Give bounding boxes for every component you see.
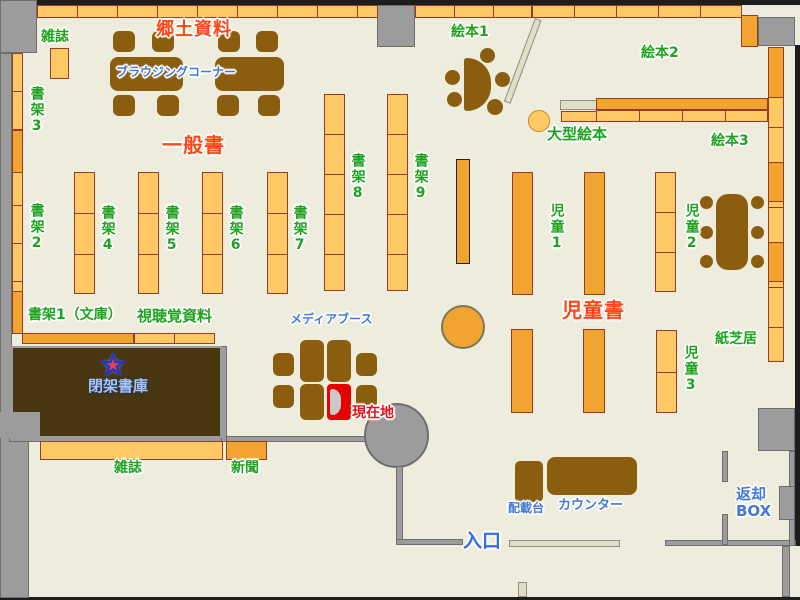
stool — [700, 226, 713, 239]
stool — [495, 72, 510, 87]
counter-desk — [547, 457, 637, 495]
bookshelf-left-column-dark-seg — [12, 291, 23, 334]
label-closed-stacks: 閉架書庫 — [88, 378, 148, 395]
label-return-box: 返却 BOX — [736, 486, 771, 520]
label-shelf7: 書架7 — [291, 205, 307, 255]
person-icon — [330, 389, 341, 415]
media-booth — [300, 384, 324, 420]
label-children-books: 児童書 — [562, 299, 625, 321]
partition-diagonal — [504, 18, 542, 104]
wall-bottom-right — [665, 540, 796, 546]
bookshelf-children-lower-1 — [511, 329, 533, 413]
label-children-1: 児童1 — [548, 203, 564, 253]
bookshelf-picturebooks-lower — [596, 110, 768, 122]
label-shelf3: 書架3 — [28, 86, 44, 136]
stool — [751, 226, 764, 239]
bookshelf-6 — [202, 172, 223, 294]
label-shelf6: 書架6 — [227, 205, 243, 255]
bookshelf-right-column-dark-seg — [768, 162, 784, 202]
label-shelf8: 書架8 — [349, 153, 365, 203]
bookshelf-children-1 — [512, 172, 533, 295]
partition-horizontal — [560, 100, 597, 110]
label-entrance: 入口 — [463, 531, 501, 552]
label-children-2: 児童2 — [683, 203, 699, 253]
wall-returnbox-upper — [722, 451, 728, 482]
label-shelf9: 書架9 — [412, 153, 428, 203]
stool — [751, 196, 764, 209]
wall-bottom-right-vertical — [782, 546, 790, 597]
wall-top-left-block — [0, 0, 37, 53]
bookshelf-top-right-piece — [741, 15, 758, 47]
round-table-center — [441, 305, 485, 349]
bookshelf-left-column-dark-seg — [12, 130, 23, 173]
bookshelf-9 — [387, 94, 408, 291]
chair — [258, 95, 280, 116]
bookshelf-4 — [74, 172, 95, 294]
label-kamishibai: 紙芝居 — [715, 332, 757, 348]
label-large-picture-books: 大型絵本 — [547, 126, 607, 143]
label-shelf2: 書架2 — [28, 203, 44, 253]
entrance-post — [518, 582, 527, 597]
label-shelf5: 書架5 — [163, 205, 179, 255]
chair — [157, 95, 179, 116]
bookshelf-narrow-media — [456, 159, 470, 264]
magazine-rack-bottom — [40, 441, 223, 460]
media-booth-seat — [273, 385, 294, 408]
bookshelf-7 — [267, 172, 288, 294]
chair — [113, 95, 135, 116]
bookshelf-large-picturebooks — [561, 111, 597, 122]
media-booth-seat — [273, 353, 294, 376]
label-general-books: 一般書 — [162, 134, 225, 156]
label-picture-books-2: 絵本2 — [641, 46, 679, 62]
chair — [256, 31, 278, 52]
chair — [217, 95, 239, 116]
bookshelf-top-row-b — [415, 5, 532, 18]
label-picture-books-3: 絵本3 — [711, 134, 749, 150]
stool — [447, 92, 462, 107]
wall-stacks-notch-over — [0, 412, 40, 438]
media-booth — [300, 340, 324, 382]
bookshelf-right-column-dark-seg — [768, 242, 784, 282]
bookshelf-top-row-a — [37, 5, 378, 18]
bookshelf-children-2b — [655, 172, 676, 292]
bookshelf-picturebooks-upper — [596, 98, 768, 110]
stool — [487, 99, 503, 115]
media-booth-seat — [356, 353, 377, 376]
stool — [480, 48, 495, 63]
label-counter: カウンター — [558, 499, 623, 514]
label-magazines-bottom: 雑誌 — [114, 461, 142, 477]
bookshelf-1-bunko — [22, 333, 134, 344]
bookshelf-8 — [324, 94, 345, 291]
label-picture-books-1: 絵本1 — [451, 25, 489, 41]
stool — [445, 70, 460, 85]
stool — [700, 196, 713, 209]
label-sorting-desk: 配載台 — [508, 502, 544, 515]
label-shelf1-bunko: 書架1（文庫） — [28, 308, 122, 324]
label-media-booth: メディアブース — [290, 313, 373, 326]
stool — [700, 255, 713, 268]
bookshelf-top-row-c — [532, 5, 742, 18]
magazine-rack-top — [50, 48, 69, 79]
bookshelf-children-3 — [656, 330, 677, 413]
children-table — [716, 194, 748, 270]
label-shelf4: 書架4 — [99, 205, 115, 255]
wall-returnbox-notch — [779, 486, 795, 520]
label-browsing-corner: ブラウジングコーナー — [116, 66, 236, 79]
pillar-top — [377, 5, 415, 47]
bookshelf-5 — [138, 172, 159, 294]
library-floor-map: ★ 雑誌 書架3 書架2 書架4 書架5 書架6 書架7 書架8 書架9 絵本1… — [0, 0, 800, 600]
bookshelf-children-2 — [584, 172, 605, 295]
wall-top-right-corner — [758, 17, 795, 46]
entrance-gate-bar — [509, 540, 620, 547]
bookshelf-children-lower-2 — [583, 329, 605, 413]
label-children-3: 児童3 — [682, 345, 698, 395]
label-newspapers: 新聞 — [231, 461, 259, 477]
bookshelf-audiovisual — [134, 333, 215, 344]
wall-entrance-vertical — [396, 466, 403, 545]
newspaper-rack — [226, 441, 267, 460]
chair — [113, 31, 135, 52]
bookshelf-right-column-dark-seg — [768, 47, 784, 98]
wall-returnbox-top-block — [758, 408, 795, 451]
map-edge-right — [795, 45, 800, 546]
current-location-marker — [327, 384, 351, 420]
wall-entrance-horizontal — [396, 539, 463, 545]
label-audiovisual: 視聴覚資料 — [137, 308, 212, 325]
stool — [751, 255, 764, 268]
label-magazines-top: 雑誌 — [41, 30, 69, 46]
wall-returnbox-lower — [722, 514, 728, 545]
sorting-desk — [515, 461, 543, 502]
media-booth — [327, 340, 351, 382]
label-current-location: 現在地 — [352, 406, 394, 422]
label-local-materials: 郷土資料 — [156, 20, 232, 40]
